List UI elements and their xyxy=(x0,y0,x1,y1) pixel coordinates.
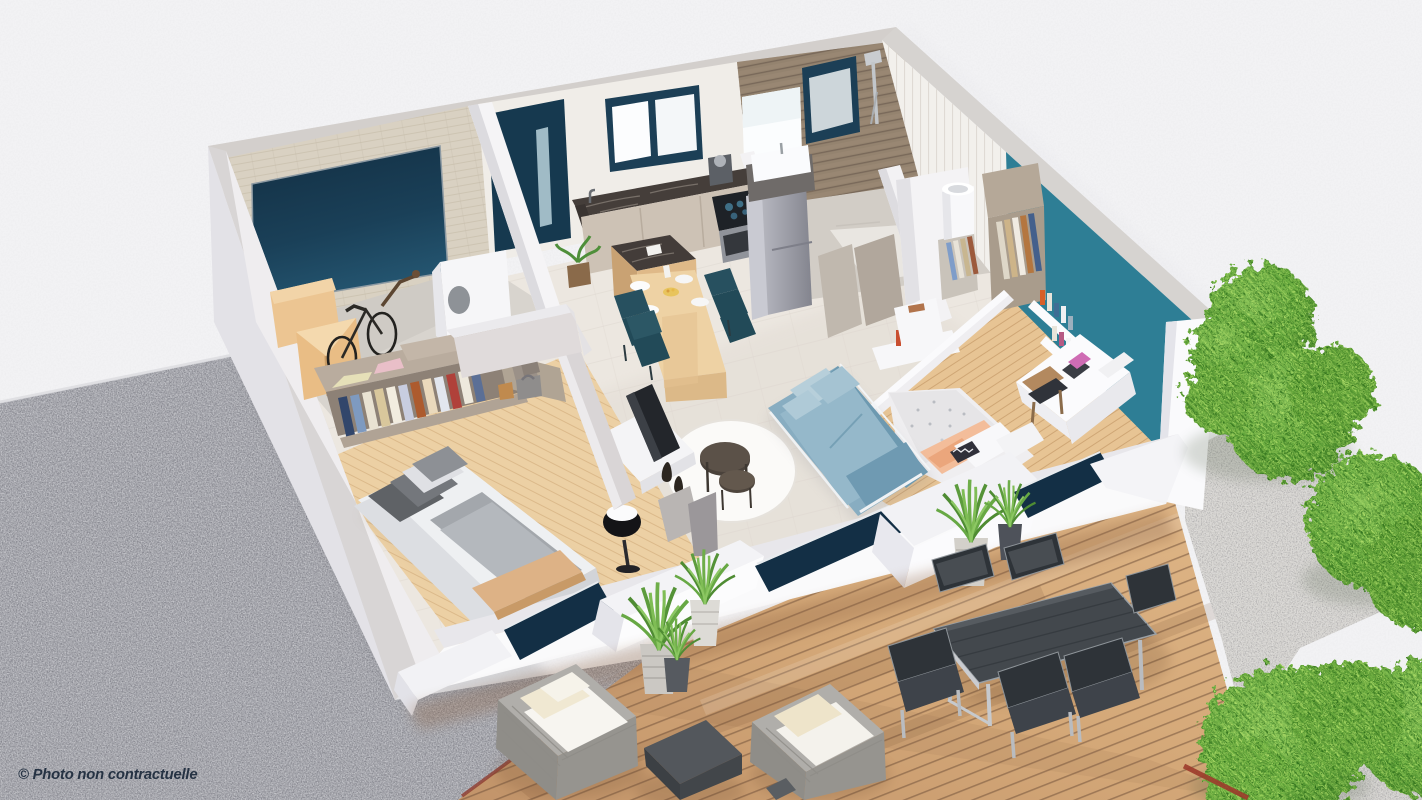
svg-text:© Photo non contractuelle: © Photo non contractuelle xyxy=(18,767,197,783)
